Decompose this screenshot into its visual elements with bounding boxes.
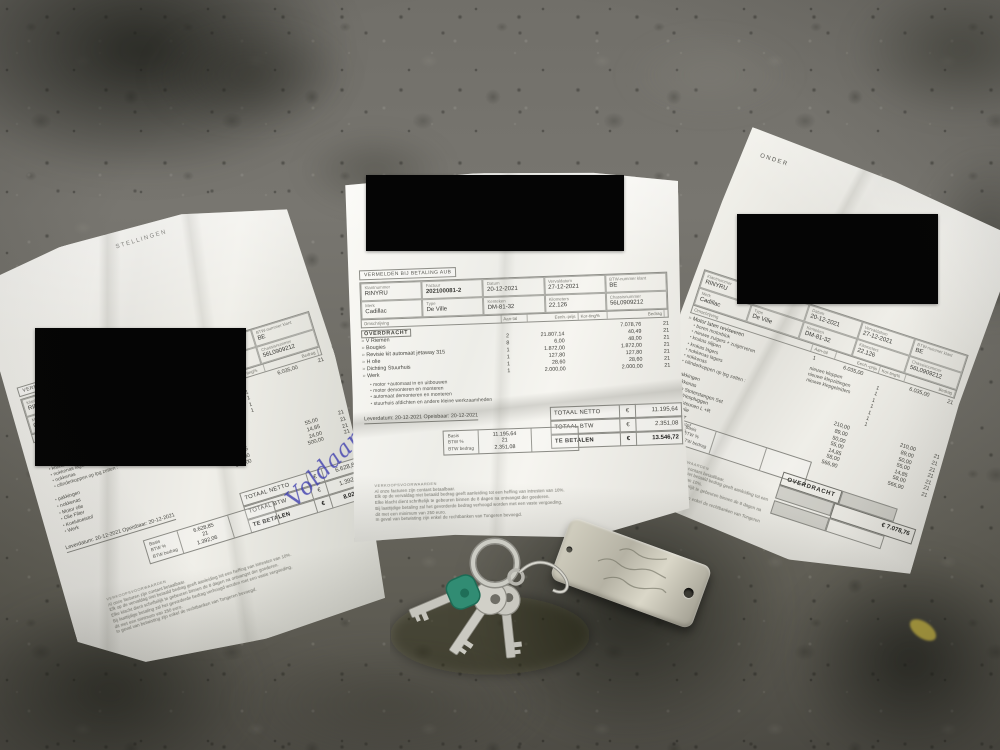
key-bundle	[390, 530, 720, 730]
delivery-date-line: Leverdatum: 20-12-2021 Opeisbaar: 20-12-…	[364, 412, 478, 424]
header-cell-kenteken: KentekenDM-81-32	[483, 295, 545, 315]
header-cell-chassisnummer: Chassisnummer56L0909212	[606, 291, 668, 311]
invoice-lines: OVERDRACHT 7.078,76 21 V Riemen 2 21.807…	[361, 321, 671, 381]
payment-note: VERMELDEN BIJ BETALING AUB	[359, 267, 457, 280]
quantity-column: 1 1 1 1	[245, 389, 255, 414]
quantity-column: 1 1 1 1 1 1 1	[863, 385, 880, 429]
header-cell-kilometers: Kilometers22.126	[544, 293, 606, 313]
redaction-box-right	[737, 214, 938, 304]
photo-scene: STELLINGEN VERMELDEN BIJ BETALING AUB Kl…	[0, 0, 1000, 750]
redaction-box-middle	[366, 175, 624, 251]
keys-illustration	[390, 530, 720, 730]
header-cell-btw-klant: BTW-nummer klantBE	[605, 273, 667, 293]
vat-basis-block: Basis BTW % BTW bedrag 11.195,64 21 2.35…	[443, 426, 580, 456]
redaction-box-left	[35, 328, 246, 466]
wire-highlight	[520, 562, 567, 592]
document-heading-partial: STELLINGEN	[115, 229, 168, 250]
header-cell-merk: MerkCadillac	[361, 299, 423, 319]
header-cell-vervaldatum: Vervaldatum27-12-2021	[544, 275, 606, 295]
document-heading-partial: ONDER	[759, 153, 789, 168]
header-cell-klantnummer: KlantnummerRINYRU	[360, 281, 422, 301]
header-cell-type: TypeDe Ville	[422, 297, 484, 317]
terms-fine-print: VERKOOPSVOORWAARDEN Al onze facturen zij…	[374, 474, 625, 523]
header-cell-datum: Datum20-12-2021	[483, 277, 545, 297]
header-cell-factuur: Factuur202100081-2	[422, 279, 484, 299]
